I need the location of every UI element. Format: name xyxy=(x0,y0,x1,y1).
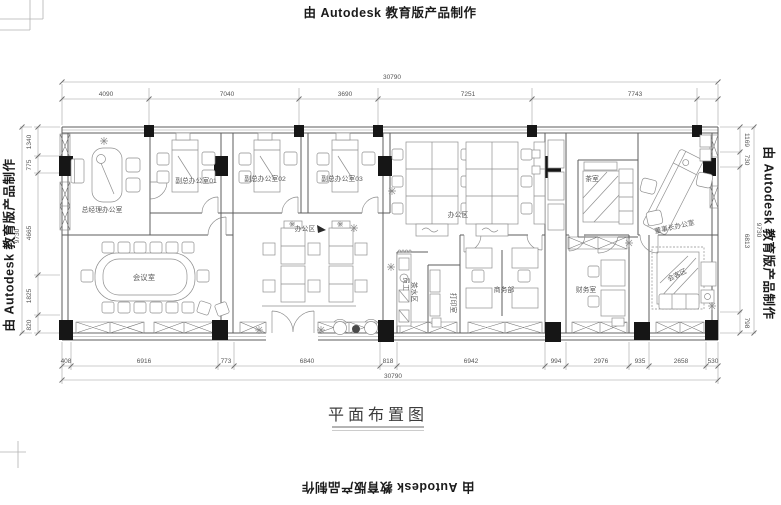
dimension-chain-left: 9730 1340 775 4665 1825 820 xyxy=(14,125,60,336)
room-label-print-room: 打印室 xyxy=(449,293,458,314)
dim-right-seg-1: 730 xyxy=(743,155,750,166)
room-label-deputy2: 副总办公室02 xyxy=(244,174,286,183)
room-label-pantry-line2: 茶水区 xyxy=(410,282,419,303)
dim-bottom-seg-3: 6840 xyxy=(300,358,315,365)
dim-right-seg-2: 6813 xyxy=(743,234,750,249)
room-label-meeting: 会议室 xyxy=(133,273,155,282)
cursor-arrow-icon xyxy=(317,225,326,233)
dim-left-seg-4: 820 xyxy=(26,319,33,330)
dim-bottom-seg-8: 935 xyxy=(635,358,646,365)
room-label-deputy3: 副总办公室03 xyxy=(321,174,363,183)
dim-bottom-seg-7: 2976 xyxy=(594,358,609,365)
furniture-deputy-office-3 xyxy=(317,133,375,192)
furniture-print-room xyxy=(430,270,441,327)
furniture-general-manager-office xyxy=(71,148,140,202)
dim-top-seg-2: 3690 xyxy=(338,91,353,98)
room-label-lounge-area: 办公区 xyxy=(295,224,316,233)
dim-bottom-seg-0: 408 xyxy=(61,358,72,365)
dim-left-seg-1: 775 xyxy=(26,159,33,170)
room-label-business: 商务部 xyxy=(494,285,515,294)
dim-right-seg-0: 1169 xyxy=(743,133,750,147)
furniture-finance-room xyxy=(568,237,627,326)
dim-bottom-seg-5: 6942 xyxy=(464,358,479,365)
dim-bottom-seg-10: 530 xyxy=(708,358,719,365)
furniture-meeting-room xyxy=(81,242,230,317)
dim-left-seg-2: 4665 xyxy=(26,225,33,240)
watermark-bottom: 由 Autodesk 教育版产品制作 xyxy=(302,479,475,498)
furniture-entrance-lobby xyxy=(334,319,378,334)
room-label-pantry-line1: 员工 xyxy=(402,277,410,291)
drawing-title: 平面布置图 xyxy=(328,406,428,431)
dim-top-seg-3: 7251 xyxy=(461,91,476,98)
dim-top-overall: 30790 xyxy=(383,74,401,81)
furniture-tea-room xyxy=(583,162,633,224)
furniture-lounge-cluster xyxy=(262,221,367,306)
room-label-office-area: 办公区 xyxy=(448,210,469,219)
dim-top-seg-4: 7743 xyxy=(628,91,643,98)
dim-bottom-seg-6: 994 xyxy=(551,358,562,365)
room-label-finance: 财务室 xyxy=(576,285,597,294)
furniture-open-office-desks xyxy=(392,140,564,236)
dim-left-seg-0: 1340 xyxy=(26,134,33,149)
furniture-guest-area xyxy=(652,247,716,309)
watermark-right: 由 Autodesk 教育版产品制作 xyxy=(761,147,780,320)
furniture-chairman-office xyxy=(640,135,714,235)
dim-top-seg-1: 7040 xyxy=(220,91,235,98)
dim-bottom-seg-9: 2658 xyxy=(674,358,689,365)
watermark-top: 由 Autodesk 教育版产品制作 xyxy=(304,2,477,21)
dim-bottom-seg-1: 6916 xyxy=(137,358,152,365)
dimension-chain-bottom: 30790 408 6916 773 6840 818 6942 994 297… xyxy=(60,342,721,384)
dim-bottom-seg-4: 818 xyxy=(383,358,394,365)
room-label-deputy1: 副总办公室01 xyxy=(175,176,217,185)
dim-bottom-overall: 30790 xyxy=(384,373,402,380)
dim-right-seg-3: 798 xyxy=(743,318,750,329)
furniture-deputy-office-2 xyxy=(239,133,297,192)
watermark-left: 由 Autodesk 教育版产品制作 xyxy=(0,159,18,332)
room-label-tea-room: 茶室 xyxy=(585,174,599,183)
dim-top-seg-0: 4090 xyxy=(99,91,114,98)
dimension-chain-top: 30790 4090 7040 3690 7251 7743 xyxy=(60,74,721,125)
dim-left-seg-3: 1825 xyxy=(26,288,33,303)
floorplan-canvas: 30790 4090 7040 3690 7251 7743 30790 408… xyxy=(0,0,781,500)
dim-bottom-seg-2: 773 xyxy=(221,358,232,365)
room-label-general-manager: 总经理办公室 xyxy=(82,205,123,214)
room-label-guest-area: 会客区 xyxy=(666,266,688,283)
drawing-title-text: 平面布置图 xyxy=(328,406,428,424)
dimension-chain-right: 9730 1169 730 6813 798 xyxy=(720,125,762,336)
